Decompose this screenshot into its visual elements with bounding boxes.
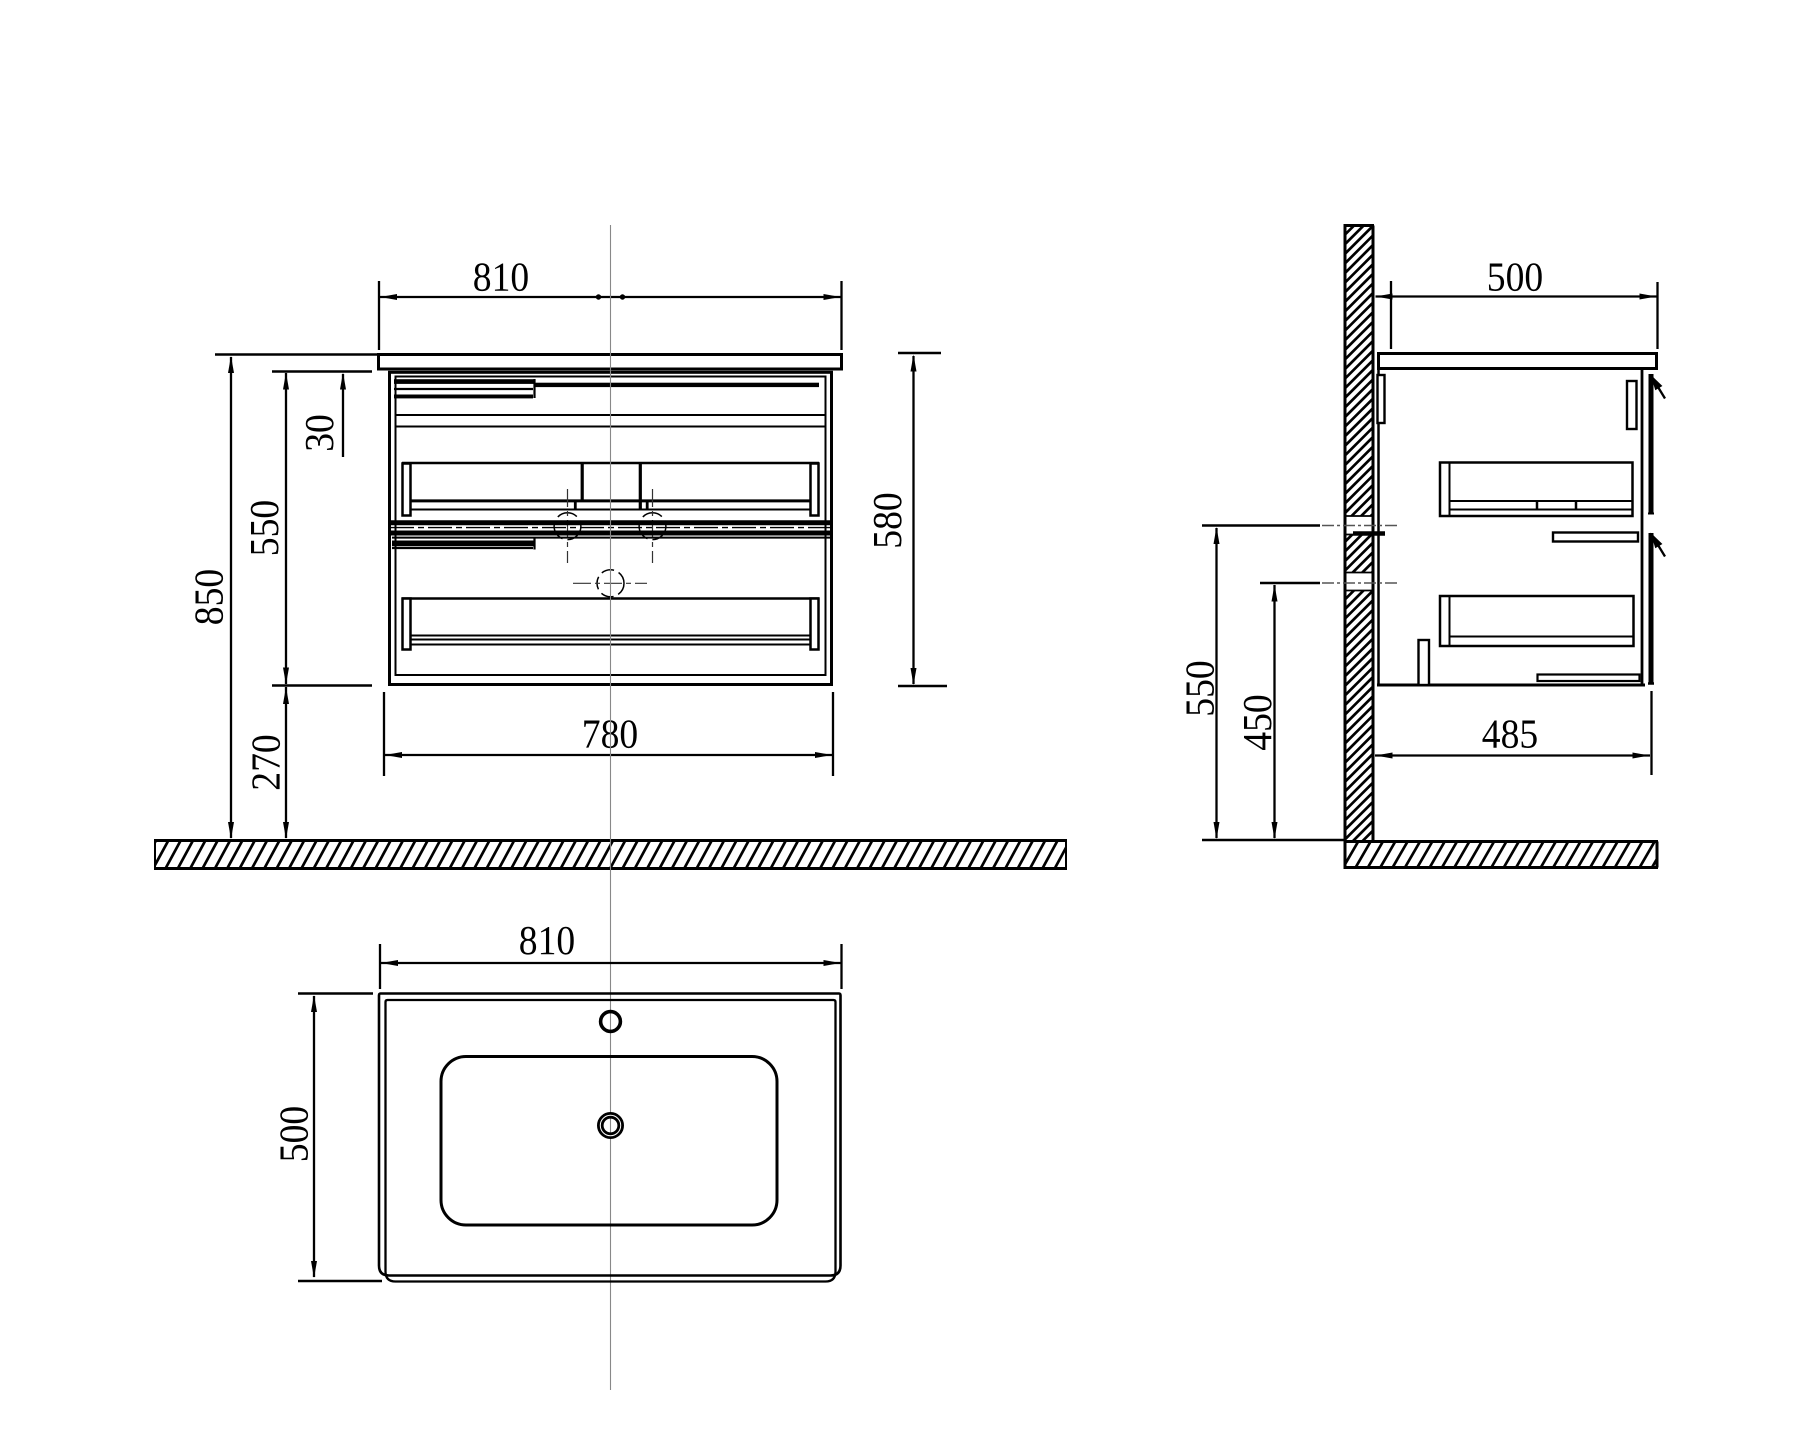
svg-text:550: 550: [241, 500, 287, 556]
svg-text:485: 485: [1482, 711, 1538, 757]
svg-text:450: 450: [1234, 694, 1280, 750]
svg-text:810: 810: [473, 254, 529, 300]
svg-text:500: 500: [1487, 254, 1543, 300]
svg-text:850: 850: [186, 569, 232, 625]
svg-text:580: 580: [864, 492, 910, 548]
svg-text:30: 30: [296, 414, 342, 452]
svg-text:270: 270: [243, 734, 289, 790]
svg-text:550: 550: [1177, 660, 1223, 716]
svg-text:810: 810: [519, 917, 575, 963]
svg-text:500: 500: [271, 1106, 317, 1162]
